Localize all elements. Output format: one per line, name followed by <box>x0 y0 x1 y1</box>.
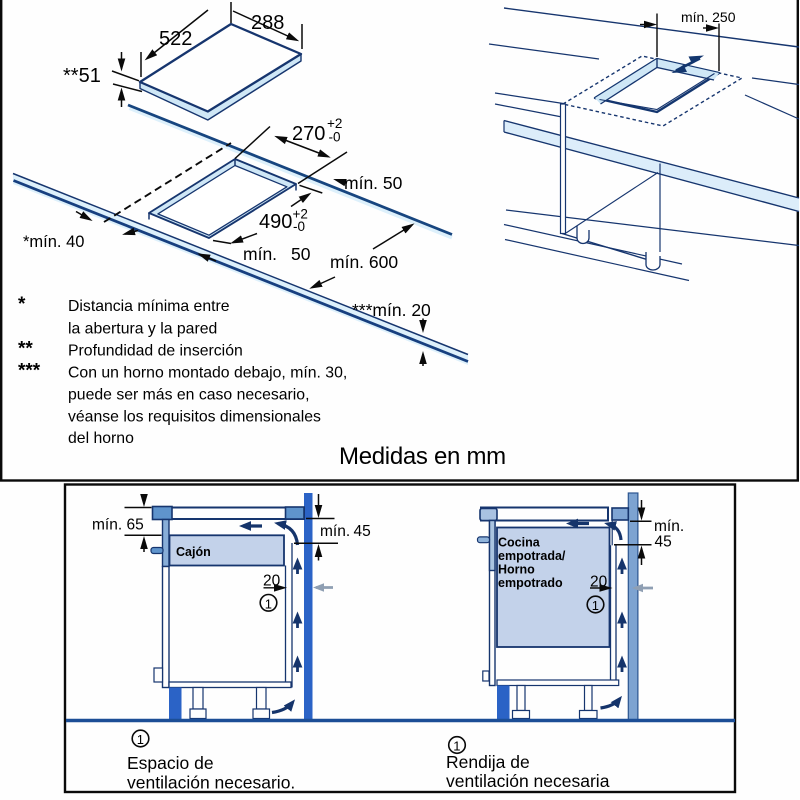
svg-text:*: * <box>18 294 26 315</box>
svg-text:mín. 600: mín. 600 <box>330 252 398 272</box>
svg-text:mín. 250: mín. 250 <box>681 9 736 25</box>
svg-text:mín.: mín. <box>320 523 350 540</box>
svg-text:288: 288 <box>251 12 284 34</box>
svg-text:mín.: mín. <box>654 518 684 535</box>
svg-text:45: 45 <box>655 534 672 551</box>
svg-text:mín. 65: mín. 65 <box>92 517 144 534</box>
svg-text:45: 45 <box>354 523 371 540</box>
svg-text:Con un horno montado debajo, m: Con un horno montado debajo, mín. 30, <box>68 365 347 382</box>
svg-text:Horno: Horno <box>498 563 535 577</box>
svg-text:20: 20 <box>263 573 281 590</box>
svg-text:**51: **51 <box>63 65 101 87</box>
svg-text:***: *** <box>18 361 41 382</box>
svg-text:la abertura y la pared: la abertura y la pared <box>68 321 217 338</box>
svg-text:del horno: del horno <box>68 430 134 447</box>
svg-text:Cajón: Cajón <box>176 545 211 559</box>
svg-text:Distancia mínima entre: Distancia mínima entre <box>68 298 230 315</box>
svg-text:ventilación necesaria: ventilación necesaria <box>446 771 610 791</box>
svg-text:mín. 50: mín. 50 <box>344 173 403 193</box>
svg-text:*mín. 40: *mín. 40 <box>23 233 84 251</box>
svg-text:Medidas en mm: Medidas en mm <box>339 443 506 470</box>
svg-text:ventilación necesario.: ventilación necesario. <box>127 773 295 793</box>
svg-text:Profundidad de inserción: Profundidad de inserción <box>68 343 243 360</box>
svg-text:empotrada/: empotrada/ <box>498 549 566 563</box>
svg-text:mín.: mín. <box>243 244 277 264</box>
svg-text:1: 1 <box>592 598 599 613</box>
svg-text:1: 1 <box>265 596 272 611</box>
svg-text:522: 522 <box>159 28 192 50</box>
svg-text:Rendija de: Rendija de <box>446 752 530 772</box>
svg-text:puede ser más en caso necesari: puede ser más en caso necesario, <box>68 387 309 404</box>
svg-text:empotrado: empotrado <box>498 576 563 590</box>
svg-text:Espacio de: Espacio de <box>127 753 214 773</box>
svg-text:Cocina: Cocina <box>498 536 541 550</box>
svg-text:***mín. 20: ***mín. 20 <box>352 300 431 320</box>
svg-text:-0: -0 <box>329 130 341 145</box>
svg-text:véanse los requisitos dimensio: véanse los requisitos dimensionales <box>68 409 321 426</box>
svg-text:490: 490 <box>259 211 292 233</box>
svg-text:50: 50 <box>291 244 311 264</box>
svg-text:**: ** <box>18 339 33 360</box>
svg-text:1: 1 <box>137 732 144 747</box>
svg-text:-0: -0 <box>293 219 305 234</box>
svg-text:270: 270 <box>292 123 325 145</box>
